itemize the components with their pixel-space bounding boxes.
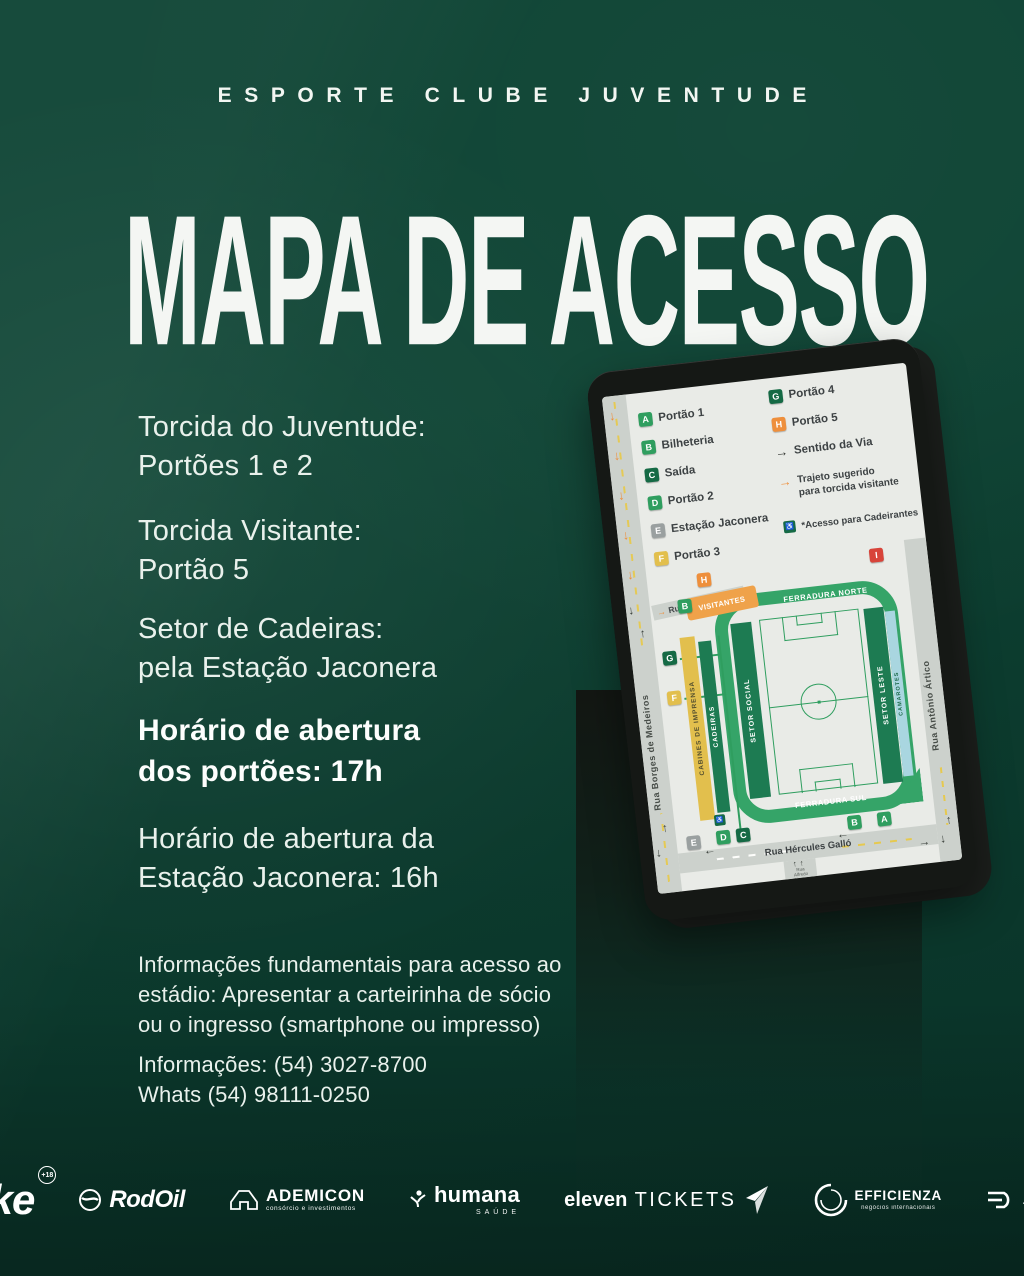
legend-item: B Bilheteria <box>641 433 715 455</box>
map-badge-h: H <box>696 572 711 587</box>
legend-item: G Portão 4 <box>768 383 835 404</box>
map-badge-e: E <box>686 835 701 850</box>
text-line: estádio: Apresentar a carteirinha de sóc… <box>138 980 562 1010</box>
wheelchair-icon: ♿ <box>783 520 796 533</box>
sponsor-name: EFFICIENZA <box>855 1189 943 1203</box>
legend-item: E Estação Jaconera <box>650 511 769 538</box>
sponsor-rodoil: RodOil <box>78 1186 185 1214</box>
pitch-center-dot <box>817 700 820 703</box>
legend-label: Estação Jaconera <box>670 512 769 535</box>
traffic-arrow-icon: ↓ <box>627 603 635 618</box>
legend-key-badge: B <box>641 440 656 455</box>
legend-item: → Trajeto sugerido para torcida visitant… <box>778 462 900 501</box>
sponsor-ademicon: ADEMICON consórcio e investimentos <box>229 1187 365 1213</box>
map-badge-b: B <box>677 598 692 613</box>
map-badge-f: F <box>667 690 682 705</box>
efficienza-text: EFFICIENZA negócios internacionais <box>855 1189 943 1211</box>
legend-label: Portão 2 <box>667 490 714 507</box>
19treze-logo-icon <box>986 1189 1016 1211</box>
legend-item: H Portão 5 <box>771 411 838 432</box>
paper-plane-icon <box>744 1185 770 1215</box>
legend-label: Saída <box>664 464 696 479</box>
map-badge-d: D <box>716 830 731 845</box>
info-gates-opening: Horário de abertura dos portões: 17h <box>138 710 420 792</box>
sponsor-name: eleven <box>564 1189 627 1212</box>
text-line: Torcida do Juventude: <box>138 408 426 447</box>
tablet-bezel: ↓ ↓ ↓ ↓ ↓ ↓ ↑ Rua Borges de Medeiros ↑ ↓… <box>585 336 979 922</box>
text-line: Horário de abertura <box>138 710 420 751</box>
info-access-requirements: Informações fundamentais para acesso ao … <box>138 950 562 1040</box>
legend-item: → Sentido da Via <box>774 435 873 460</box>
sponsor-bar: Stake +18 RodOil ADEMICON consórcio e in… <box>0 1152 1024 1248</box>
sponsor-name: humana <box>434 1184 520 1206</box>
text-line: Horário de abertura da <box>138 820 439 859</box>
rodoil-swirl-icon <box>78 1188 102 1212</box>
text-line: Informações: (54) 3027-8700 <box>138 1050 427 1080</box>
map-badge-i: I <box>869 547 884 562</box>
poster: ESPORTE CLUBE JUVENTUDE MAPA DE ACESSO T… <box>0 0 1024 1276</box>
street-antonio-artico: Rua Antônio Ártico ↓ ↑ <box>904 537 963 861</box>
legend-label: Portão 1 <box>658 407 705 424</box>
street-name: Rua Borges de Medeiros <box>634 646 663 814</box>
map-badge-c: C <box>735 827 750 842</box>
legend-item: A Portão 1 <box>638 406 705 427</box>
sponsor-subtitle: consórcio e investimentos <box>266 1206 356 1213</box>
legend-label: *Acesso para Cadeirantes <box>801 507 919 531</box>
traffic-arrow-icon: → <box>917 834 931 849</box>
info-visitor-fans: Torcida Visitante: Portão 5 <box>138 512 362 590</box>
legend-key-badge: G <box>768 389 783 404</box>
text-line: Estação Jaconera: 16h <box>138 859 439 898</box>
tablet-device: ↓ ↓ ↓ ↓ ↓ ↓ ↑ Rua Borges de Medeiros ↑ ↓… <box>585 336 979 922</box>
direction-arrow-icon: → <box>774 445 789 460</box>
sponsor-19treze: 19TREZE <box>986 1189 1024 1211</box>
route-arrow-icon: → <box>656 606 667 618</box>
map-badge-a: A <box>877 811 892 826</box>
sponsor-name: Stake <box>0 1176 34 1223</box>
ademicon-text: ADEMICON consórcio e investimentos <box>266 1187 365 1213</box>
text-line: Informações fundamentais para acesso ao <box>138 950 562 980</box>
info-station-opening: Horário de abertura da Estação Jaconera:… <box>138 820 439 898</box>
text-line: pela Estação Jaconera <box>138 649 437 688</box>
legend-item: F Portão 3 <box>654 545 721 566</box>
legend-key-badge: H <box>771 417 786 432</box>
text-line: dos portões: 17h <box>138 751 420 792</box>
traffic-arrow-icon: ↓ <box>939 831 947 846</box>
sector-label: CADEIRAS <box>708 705 720 747</box>
info-chairs-sector: Setor de Cadeiras: pela Estação Jaconera <box>138 610 437 688</box>
sponsor-name: ADEMICON <box>266 1187 365 1204</box>
text-line: Torcida Visitante: <box>138 512 362 551</box>
legend-item: D Portão 2 <box>647 489 714 510</box>
sector-label: SETOR LESTE <box>876 665 890 725</box>
traffic-arrow-icon: ↑ <box>661 821 669 836</box>
suggested-route-arrow-icon: → <box>778 474 793 489</box>
map-badge-b-bottom: B <box>847 815 862 830</box>
sponsor-subtitle: SAÚDE <box>476 1209 520 1216</box>
street-name: Rua Antônio Ártico <box>913 594 941 754</box>
humana-text: humana SAÚDE <box>434 1184 520 1216</box>
legend-label: Bilheteria <box>661 434 714 452</box>
legend-key-badge: F <box>654 551 669 566</box>
legend-label: Sentido da Via <box>793 436 873 457</box>
legend-key-badge: E <box>650 523 665 538</box>
text-line: Portão 5 <box>138 551 362 590</box>
info-home-fans: Torcida do Juventude: Portões 1 e 2 <box>138 408 426 486</box>
tablet-screen: ↓ ↓ ↓ ↓ ↓ ↓ ↑ Rua Borges de Medeiros ↑ ↓… <box>602 363 963 894</box>
text-line: Portões 1 e 2 <box>138 447 426 486</box>
sector-label: SETOR SOCIAL <box>744 678 758 743</box>
wheelchair-access-icon: ♿ <box>714 814 726 826</box>
legend-key-badge: C <box>644 467 659 482</box>
sponsor-humana: humana SAÚDE <box>409 1184 520 1216</box>
sponsor-stake: Stake +18 <box>0 1176 34 1224</box>
club-name: ESPORTE CLUBE JUVENTUDE <box>0 84 1024 108</box>
sector-label: VISITANTES <box>698 594 746 612</box>
street-alfredo-chaves: ↑↑ Rua Alfredo Chaves <box>783 858 817 880</box>
text-line: ou o ingresso (smartphone ou impresso) <box>138 1010 562 1040</box>
sponsor-eleventickets: eleven TICKETS <box>564 1185 769 1215</box>
traffic-arrow-icon: ↑ <box>639 626 647 641</box>
stake-wordmark: Stake +18 <box>0 1176 34 1224</box>
legend-item: ♿ *Acesso para Cadeirantes <box>783 506 919 533</box>
humana-person-icon <box>409 1189 427 1211</box>
legend-item: C Saída <box>644 463 696 483</box>
football-pitch <box>759 609 878 795</box>
legend-label: Portão 4 <box>788 384 835 401</box>
sponsor-efficienza: EFFICIENZA negócios internacionais <box>814 1183 943 1217</box>
info-contact: Informações: (54) 3027-8700 Whats (54) 9… <box>138 1050 427 1110</box>
map-badge-g: G <box>662 650 677 665</box>
ademicon-house-icon <box>229 1188 259 1212</box>
sponsor-name: RodOil <box>109 1186 185 1214</box>
legend-key-badge: D <box>647 495 662 510</box>
sponsor-subtitle: negócios internacionais <box>861 1205 935 1211</box>
age-18-badge: +18 <box>38 1166 56 1184</box>
text-line: Setor de Cadeiras: <box>138 610 437 649</box>
legend-label: Portão 5 <box>791 412 838 429</box>
legend-label-multiline: Trajeto sugerido para torcida visitante <box>797 462 900 499</box>
text-line: Whats (54) 98111-0250 <box>138 1080 427 1110</box>
sponsor-name-2: TICKETS <box>635 1189 737 1212</box>
legend-label: Portão 3 <box>674 546 721 563</box>
legend-key-badge: A <box>638 412 653 427</box>
efficienza-swirl-icon <box>814 1183 848 1217</box>
traffic-arrow-icon: ↓ <box>655 845 663 860</box>
traffic-arrow-icon: ↑ <box>945 812 953 827</box>
